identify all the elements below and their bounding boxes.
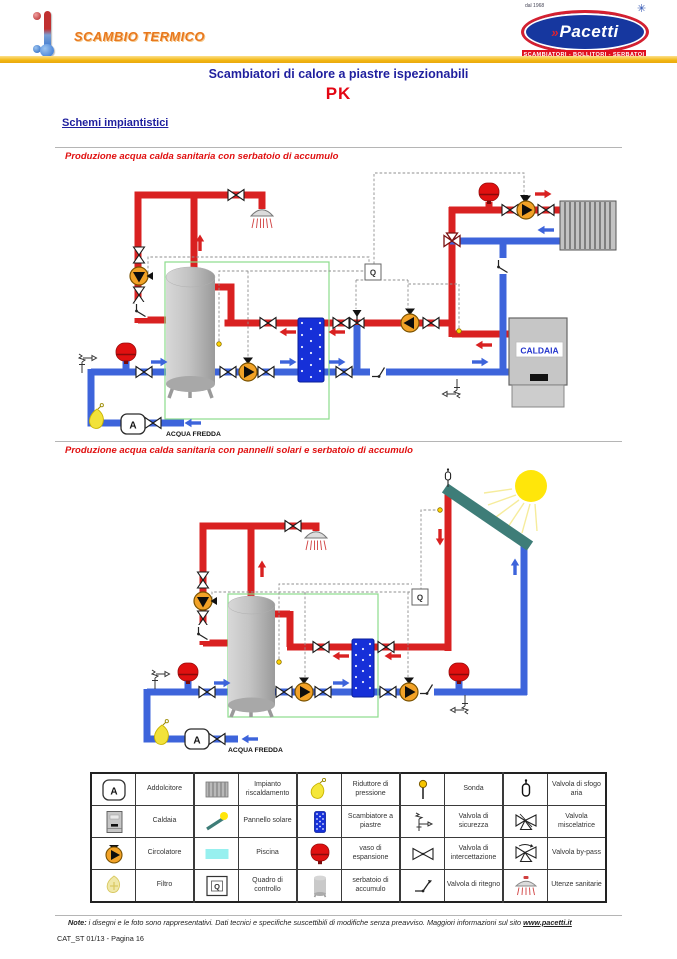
control-panel-icon: Q	[194, 870, 239, 903]
solar-circuit-pump	[400, 678, 418, 702]
page-code: CAT_ST 01/13 - Pagina 16	[57, 934, 144, 943]
shower-icon	[251, 210, 273, 228]
legend-row: Caldaia Pannello solare Scambiatore a pi…	[91, 806, 606, 838]
legend-label: Valvola di sicurezza	[445, 806, 504, 838]
shower-icon	[305, 532, 327, 550]
recirculation-pump	[130, 267, 153, 285]
heating-expansion-vessel	[479, 183, 499, 204]
tank-loading-pump	[295, 678, 313, 702]
air-vent-valve	[445, 468, 450, 487]
softener-icon: A	[91, 773, 136, 806]
legend-label: Valvola by-pass	[548, 838, 607, 870]
pump-icon	[91, 838, 136, 870]
tank-sensor	[277, 660, 282, 665]
pressure-reducer-icon	[297, 773, 342, 806]
footer-note: Note: i disegni e le foto sono rappresen…	[68, 918, 616, 927]
diagram-storage-tank-scheme: CALDAIA Q	[60, 165, 620, 437]
plate-exchanger-icon	[297, 806, 342, 838]
expansion-vessel-icon	[297, 838, 342, 870]
expansion-vessel	[178, 663, 198, 684]
cold-water-label: ACQUA FREDDA	[166, 431, 221, 437]
legend-label: Caldaia	[136, 806, 195, 838]
page-title: Scambiatori di calore a piastre ispezion…	[0, 67, 677, 81]
control-panel-q: Q	[365, 264, 381, 280]
bypass-valve-icon	[503, 838, 548, 870]
control-panel-label: Q	[370, 269, 376, 278]
drain-safety-group	[451, 695, 469, 714]
radiator-icon	[194, 773, 239, 806]
control-panel-q: Q	[412, 589, 428, 605]
storage-tank-icon	[297, 870, 342, 903]
logo-since-text: dal 1968	[525, 3, 544, 9]
legend-label: Sonda	[445, 773, 504, 806]
legend-label: Valvola di sfogo aria	[548, 773, 607, 806]
thermometer-hot-dot	[33, 12, 41, 20]
legend-label: Piscina	[239, 838, 298, 870]
gold-divider-bar	[0, 56, 677, 63]
legend-label: Addolcitore	[136, 773, 195, 806]
solar-expansion-vessel	[449, 663, 469, 684]
legend-table: A Addolcitore Impianto riscaldamento Rid…	[90, 772, 607, 903]
sanitary-icon	[503, 870, 548, 903]
thermometer-logo	[33, 9, 59, 57]
legend-label: Utenze sanitarie	[548, 870, 607, 903]
pacetti-logo-oval: » Pacetti	[521, 10, 649, 54]
logo-chevron: »	[551, 25, 558, 40]
heating-circuit-pump	[517, 196, 535, 220]
water-softener: A	[185, 729, 209, 749]
model-title: PK	[0, 84, 677, 104]
legend-label: vaso di espansione	[342, 838, 401, 870]
water-filter	[154, 720, 168, 745]
safety-valve-group	[152, 670, 170, 689]
cold-water-label: ACQUA FREDDA	[228, 747, 283, 754]
diagram-solar-scheme: Q	[60, 459, 620, 759]
plate-heat-exchanger	[352, 639, 374, 697]
legend-label: Filtro	[136, 870, 195, 903]
air-vent-valve-icon	[503, 773, 548, 806]
water-softener: A	[121, 414, 145, 434]
legend-label: Riduttore di pressione	[342, 773, 401, 806]
logo-brand-name: Pacetti	[559, 22, 618, 42]
mixing-valve-icon	[503, 806, 548, 838]
legend-label: serbatoio di accumulo	[342, 870, 401, 903]
section-heading: Schemi impiantistici	[62, 117, 168, 129]
diagram1-caption: Produzione acqua calda sanitaria con ser…	[65, 151, 338, 162]
legend-label: Circolatore	[136, 838, 195, 870]
probe-icon	[400, 773, 445, 806]
brand-scambio-termico: SCAMBIO TERMICO	[74, 29, 205, 44]
pipe-sensor	[457, 329, 462, 334]
legend-label: Valvola di intercettazione	[445, 838, 504, 870]
svg-text:A: A	[110, 786, 117, 797]
svg-text:Q: Q	[214, 882, 220, 891]
softener-label: A	[129, 421, 136, 432]
softener-label: A	[193, 736, 200, 747]
plate-heat-exchanger	[298, 318, 324, 382]
tank-loading-pump	[239, 358, 257, 382]
gear-icon: ✳	[637, 2, 646, 15]
legend-row: Circolatore Piscina vaso di espansione V…	[91, 838, 606, 870]
storage-tank	[166, 267, 215, 398]
divider-line	[55, 441, 622, 442]
radiator	[560, 201, 616, 250]
solar-sensor	[438, 508, 443, 513]
legend-label: Valvola di ritegno	[445, 870, 504, 903]
diagram2-caption: Produzione acqua calda sanitaria con pan…	[65, 445, 413, 456]
legend-label: Quadro di controllo	[239, 870, 298, 903]
legend-row: A Addolcitore Impianto riscaldamento Rid…	[91, 773, 606, 806]
pool-icon	[194, 838, 239, 870]
note-text: i disegni e le foto sono rappresentativi…	[87, 918, 523, 927]
filter-icon	[91, 870, 136, 903]
control-panel-label: Q	[417, 594, 423, 603]
primary-circuit-pump	[401, 309, 419, 333]
drain-safety-group	[443, 379, 461, 398]
shutoff-valve-icon	[400, 838, 445, 870]
catalog-page: SCAMBIO TERMICO dal 1968 ✳ » Pacetti SCA…	[0, 0, 677, 959]
legend-label: Impianto riscaldamento	[239, 773, 298, 806]
solar-panel	[445, 488, 530, 546]
safety-valve-icon	[400, 806, 445, 838]
boiler-caldaia: CALDAIA	[509, 318, 567, 407]
shutoff-valves	[198, 521, 397, 745]
legend-label: Pannello solare	[239, 806, 298, 838]
check-valve-icon	[400, 870, 445, 903]
pacetti-logo: dal 1968 ✳ » Pacetti SCAMBIATORI - BOLLI…	[513, 3, 653, 61]
storage-tank	[228, 596, 275, 717]
boiler-label: CALDAIA	[520, 346, 558, 356]
boiler-icon	[91, 806, 136, 838]
expansion-vessel	[116, 343, 136, 364]
tank-sensor	[217, 342, 222, 347]
legend-label: Scambiatore a piastre	[342, 806, 401, 838]
divider-line	[55, 147, 622, 148]
website-link[interactable]: www.pacetti.it	[523, 918, 572, 927]
note-label: Note:	[68, 918, 87, 927]
legend-label: Valvola miscelatrice	[548, 806, 607, 838]
footer-divider	[55, 915, 622, 916]
solar-panel-icon	[194, 806, 239, 838]
legend-row: Filtro Q Quadro di controllo serbatoio d…	[91, 870, 606, 903]
recirculation-pump	[194, 592, 217, 610]
